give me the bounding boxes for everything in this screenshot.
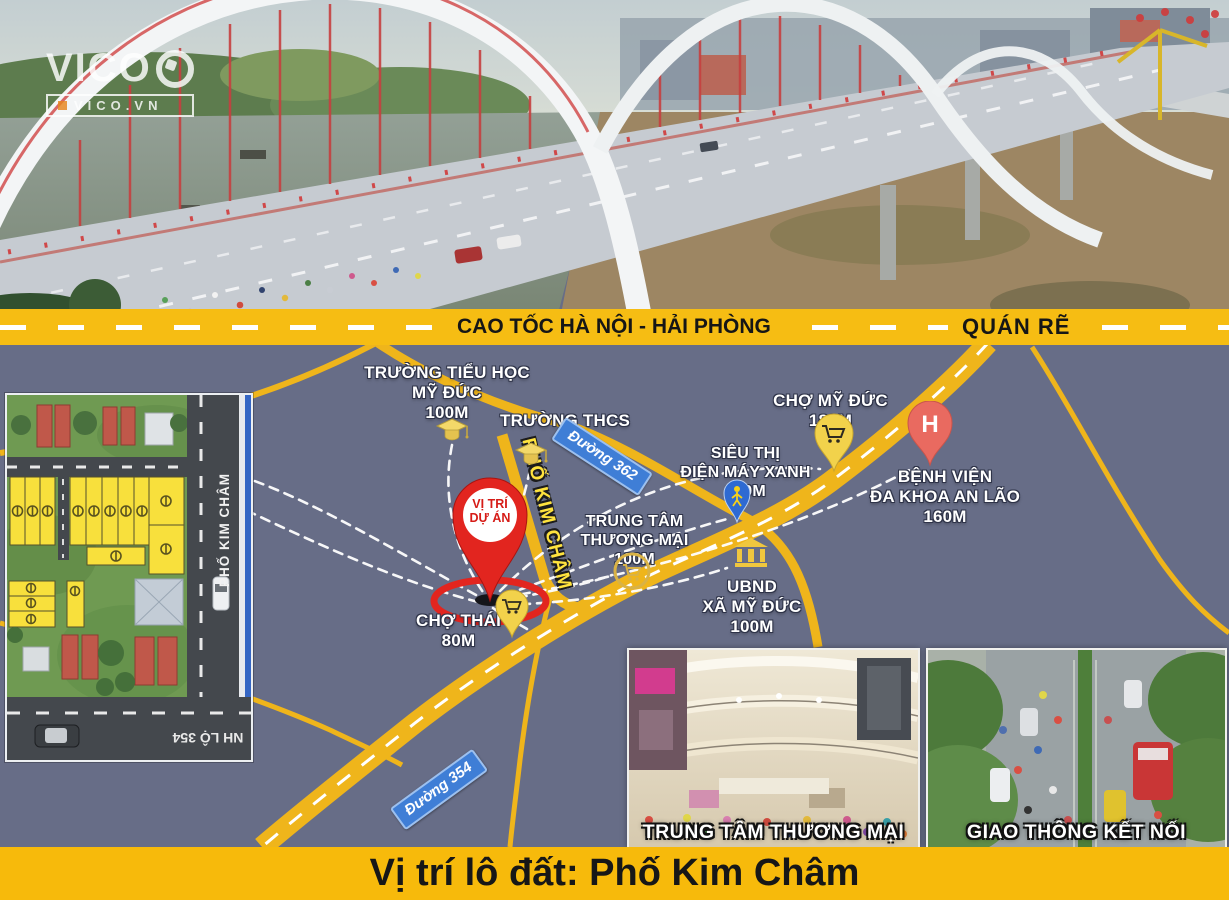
graduation-cap-icon: [514, 441, 548, 474]
highway-name-label: CAO TỐC HÀ NỘI - HẢI PHÒNG: [443, 309, 785, 345]
mall-circle-icon: [612, 551, 652, 596]
svg-text:H: H: [921, 411, 938, 438]
vico-domain-box: VICO.VN: [46, 94, 194, 117]
vico-watermark: VICO VICO.VN: [46, 46, 194, 117]
mall-photo-caption: TRUNG TÂM THƯƠNG MẠI: [629, 821, 918, 844]
poi-label-ubnd: UBNDXÃ MỸ ĐỨC100M: [672, 577, 832, 637]
inset-road-label: NH LỘ 354: [172, 730, 243, 747]
vico-domain-text: VICO.VN: [74, 98, 162, 113]
supermarket-pin-icon: [722, 478, 752, 529]
site-plan-inset: NH LỘ 354 PHỐ KIM CHÂM: [5, 393, 253, 762]
footer-bar: Vị trí lô đất: Phố Kim Châm: [0, 847, 1229, 900]
traffic-photo-caption: GIAO THÔNG KẾT NỐI: [928, 821, 1225, 844]
poi-label-hospital: BỆNH VIỆNĐA KHOA AN LÃO160M: [845, 467, 1045, 527]
market-pin-icon: [813, 413, 855, 478]
junction-label: QUÁN RẼ: [948, 309, 1084, 345]
inset-street-label: PHỐ KIM CHÂM: [217, 473, 232, 587]
vico-logo-text: VICO: [46, 46, 152, 91]
vico-logo: VICO: [46, 46, 194, 91]
flyer: VICO VICO.VN CAO TỐC HÀ NỘI - HẢI PHÒNG …: [0, 0, 1229, 900]
orange-dot-icon: [58, 101, 67, 110]
government-building-icon: [732, 537, 770, 574]
mall-photo: TRUNG TÂM THƯƠNG MẠI: [627, 648, 920, 849]
project-pin-label: VỊ TRÍDỰ ÁN: [447, 497, 533, 526]
traffic-photo: GIAO THÔNG KẾT NỐI: [926, 648, 1227, 849]
hospital-pin-icon: H: [906, 401, 954, 472]
camera-aperture-icon: [156, 50, 194, 88]
mall-photo-art: [629, 650, 918, 847]
graduation-cap-icon: [435, 417, 469, 450]
footer-title: Vị trí lô đất: Phố Kim Châm: [0, 847, 1229, 899]
site-plan-art: NH LỘ 354 PHỐ KIM CHÂM: [7, 395, 251, 760]
project-pin-icon: VỊ TRÍDỰ ÁN: [447, 471, 533, 608]
highway-band: CAO TỐC HÀ NỘI - HẢI PHÒNG QUÁN RẼ: [0, 309, 1229, 345]
traffic-photo-art: [928, 650, 1225, 847]
